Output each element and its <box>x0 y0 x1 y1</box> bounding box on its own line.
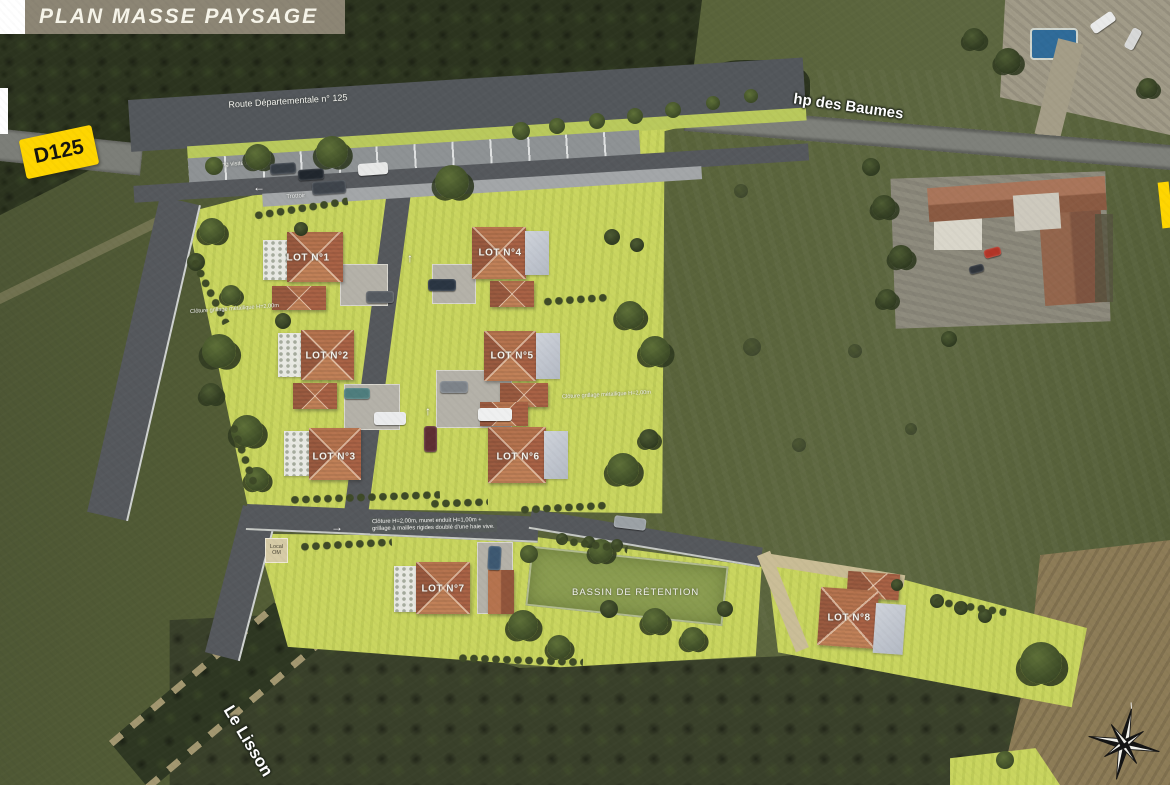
tree <box>792 438 806 452</box>
car <box>487 546 501 571</box>
car <box>428 279 456 291</box>
tree <box>600 600 618 618</box>
lot-label: LOT N°8 <box>827 613 870 624</box>
site-plan-map: Route Départementale n° 125 Parking visi… <box>0 0 1170 785</box>
fence-note-main: Clôture H=2,00m, muret enduit H=1,00m + … <box>370 516 497 534</box>
tree <box>665 102 681 118</box>
farm-shadow <box>1095 214 1113 302</box>
tree <box>604 229 620 245</box>
tree <box>848 344 862 358</box>
page-title: PLAN MASSE PAYSAGE <box>39 5 318 28</box>
tree <box>941 331 957 347</box>
garage-roof-terracotta <box>293 383 337 409</box>
lot-label: LOT N°3 <box>312 452 355 463</box>
car <box>344 388 370 399</box>
tree <box>872 195 896 219</box>
tree <box>862 158 880 176</box>
tree <box>640 336 670 366</box>
tree <box>245 144 271 170</box>
tree <box>743 338 761 356</box>
terrace-panel <box>394 566 417 612</box>
tree <box>607 453 639 485</box>
tree <box>995 48 1021 74</box>
lot-label: LOT N°7 <box>421 584 464 595</box>
car <box>270 162 297 175</box>
tree <box>316 136 348 168</box>
car <box>366 291 394 303</box>
car <box>298 168 325 181</box>
tree <box>589 113 605 129</box>
tree <box>549 118 565 134</box>
d125-sign-label: D125 <box>32 135 86 169</box>
up-direction-arrow: ↑ <box>425 404 431 418</box>
car <box>478 408 512 421</box>
garage-roof-gray <box>525 231 549 275</box>
car <box>358 162 389 176</box>
waste-collection-point: Local OM <box>265 538 288 563</box>
fence-note-line2: grillage à mailles rigides doublé d'une … <box>372 524 495 533</box>
garage-roof-gray <box>873 603 906 655</box>
tree <box>877 289 897 309</box>
tree <box>200 383 222 405</box>
garage-roof-gray <box>536 333 560 379</box>
tree <box>642 608 668 634</box>
tree <box>627 108 643 124</box>
tree <box>996 751 1014 769</box>
retention-basin-label: BASSIN DE RÉTENTION <box>572 587 692 598</box>
annex-roof <box>488 570 514 614</box>
tree <box>435 165 469 199</box>
lot-label: LOT N°5 <box>490 351 533 362</box>
page-margin <box>0 88 8 134</box>
tree <box>734 184 748 198</box>
tree <box>508 610 538 640</box>
car <box>374 412 406 425</box>
tree <box>547 635 571 659</box>
tree <box>520 545 538 563</box>
lot-label: LOT N°2 <box>305 351 348 362</box>
compass-rose-icon <box>1073 693 1170 785</box>
tree <box>1138 78 1158 98</box>
farm-building-roof <box>1013 192 1061 231</box>
garage-roof-terracotta <box>272 286 326 310</box>
tree <box>294 222 308 236</box>
tree <box>891 579 903 591</box>
right-direction-arrow: → <box>331 520 343 534</box>
tree <box>639 429 659 449</box>
left-direction-arrow: ← <box>253 180 265 194</box>
tree <box>199 218 225 244</box>
plan-title-banner: PLAN MASSE PAYSAGE <box>25 0 345 34</box>
garage-roof-gray <box>544 431 568 479</box>
tree <box>681 627 705 651</box>
up-direction-arrow: ↑ <box>407 251 413 265</box>
car <box>312 180 347 195</box>
tree <box>963 28 985 50</box>
lot-label: LOT N°1 <box>286 253 329 264</box>
terrace-panel <box>284 431 310 476</box>
tree <box>205 157 223 175</box>
tree <box>717 601 733 617</box>
tree <box>706 96 720 110</box>
lot-label: LOT N°6 <box>496 452 539 463</box>
tree <box>630 238 644 252</box>
tree <box>616 301 644 329</box>
tree <box>744 89 758 103</box>
garage-roof-terracotta <box>490 281 534 307</box>
page-margin <box>0 0 25 34</box>
car <box>440 381 468 393</box>
tree <box>202 334 236 368</box>
trottoir-label: Trottoir <box>286 193 305 200</box>
terrace-panel <box>278 333 303 377</box>
tree <box>275 313 291 329</box>
tree <box>221 285 241 305</box>
lot-label: LOT N°4 <box>478 248 521 259</box>
car <box>424 426 437 452</box>
tree <box>905 423 917 435</box>
tree <box>512 122 530 140</box>
tree <box>889 245 913 269</box>
tree <box>1020 642 1062 684</box>
